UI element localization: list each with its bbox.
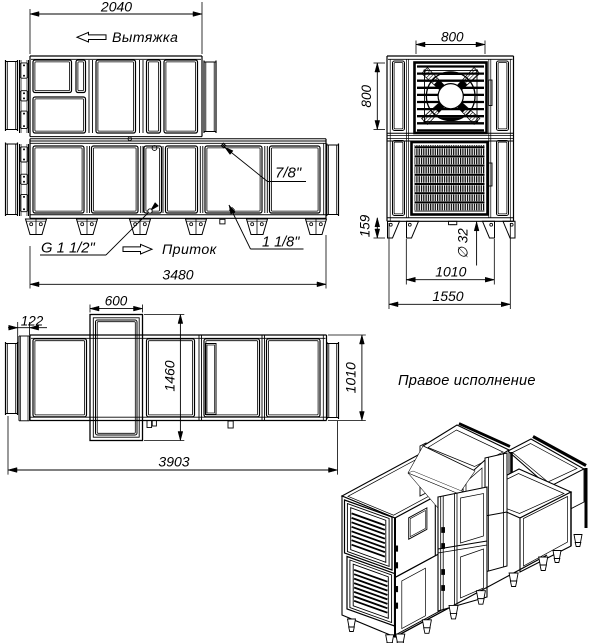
svg-text:3903: 3903	[158, 453, 189, 469]
svg-text:7/8": 7/8"	[275, 165, 302, 182]
svg-text:3480: 3480	[162, 267, 193, 283]
svg-text:1010: 1010	[343, 362, 359, 393]
svg-text:1010: 1010	[435, 263, 466, 279]
svg-text:Приток: Приток	[162, 242, 218, 258]
svg-text:159: 159	[358, 214, 373, 237]
svg-text:2040: 2040	[100, 0, 132, 15]
svg-text:1460: 1460	[161, 360, 177, 391]
svg-text:Правое исполнение: Правое исполнение	[398, 373, 536, 389]
svg-text:800: 800	[441, 30, 464, 45]
svg-text:600: 600	[105, 294, 128, 309]
svg-text:122: 122	[21, 313, 44, 328]
svg-text:1 1/8": 1 1/8"	[262, 235, 300, 251]
svg-text:∅ 32: ∅ 32	[456, 228, 471, 259]
svg-text:1550: 1550	[432, 288, 463, 304]
svg-text:Вытяжка: Вытяжка	[112, 30, 178, 46]
svg-text:800: 800	[359, 85, 374, 108]
svg-text:G 1 1/2": G 1 1/2"	[41, 241, 96, 257]
